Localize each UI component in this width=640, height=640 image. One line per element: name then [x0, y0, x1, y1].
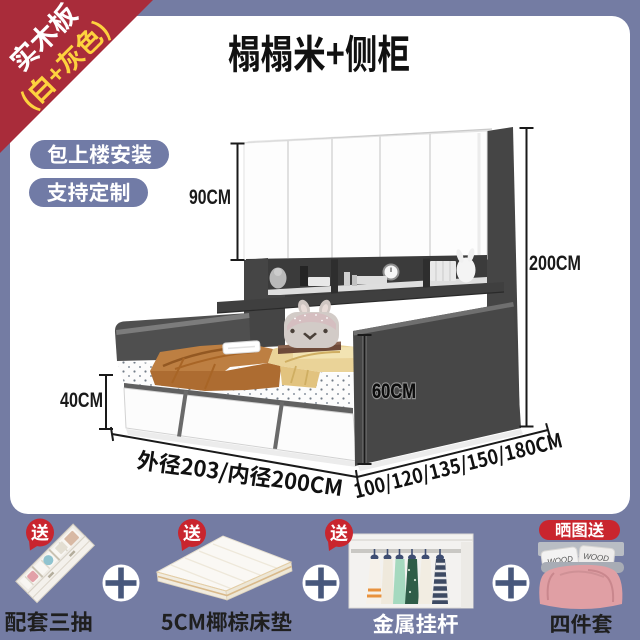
svg-text:90CM: 90CM — [189, 186, 231, 209]
svg-text:60CM: 60CM — [372, 380, 416, 403]
svg-text:200CM: 200CM — [529, 252, 581, 275]
svg-text:40CM: 40CM — [60, 389, 103, 412]
